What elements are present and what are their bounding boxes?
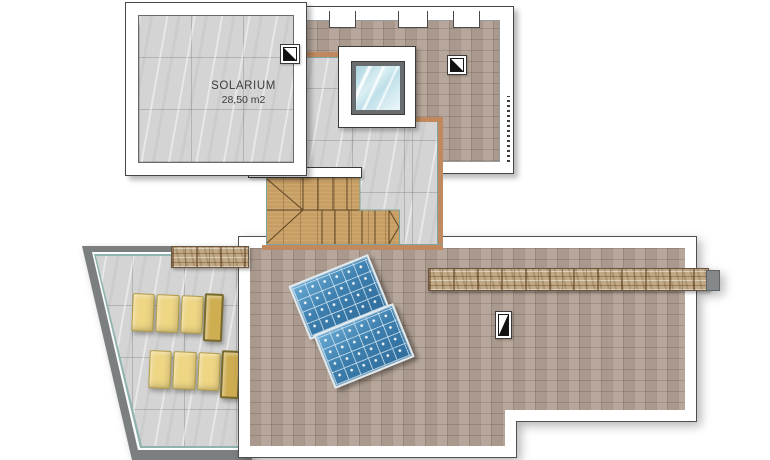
stair-border-right-line [437, 122, 438, 245]
skylight [338, 46, 416, 128]
serrated-edge [507, 96, 510, 162]
terrace [80, 244, 252, 460]
sun-lounger-icon [147, 350, 241, 392]
parapet-notch [453, 11, 480, 28]
roof-drain-glyph [283, 47, 297, 61]
parapet-notch [398, 11, 428, 28]
parapet-notch [329, 11, 356, 28]
staircase-treads [266, 177, 400, 245]
stair-border-bottom [262, 245, 443, 250]
roof-drain-icon [447, 55, 467, 75]
lounger-cushion [180, 295, 204, 334]
stone-ledge-beam [428, 268, 709, 291]
lounger-headrest [203, 293, 224, 342]
roof-scupper-icon [495, 311, 512, 339]
lounger-cushion [173, 351, 197, 390]
stairwell-floor [412, 122, 438, 245]
roof-drain-icon [280, 44, 300, 64]
skylight-glass [356, 66, 400, 110]
main-roof [238, 236, 717, 460]
lounger-cushion [131, 293, 155, 332]
stone-beam-end-cap [706, 270, 720, 291]
solarium: SOLARIUM 28,50 m2 [125, 2, 307, 176]
lounger-cushion [197, 352, 221, 391]
roof-scupper-glyph [498, 314, 509, 336]
stone-ledge-terrace [171, 246, 249, 268]
lounger-cushion [156, 294, 180, 333]
lounger-cushion [148, 350, 172, 389]
sun-lounger-icon [130, 293, 224, 335]
solarium-area-label: 28,50 m2 [181, 94, 306, 107]
roof-plan-canvas: SOLARIUM 28,50 m2 [0, 0, 770, 460]
skylight-frame [351, 61, 405, 115]
solarium-label: SOLARIUM [181, 79, 306, 93]
stair-border-right [438, 117, 443, 250]
roof-drain-glyph [450, 58, 464, 72]
